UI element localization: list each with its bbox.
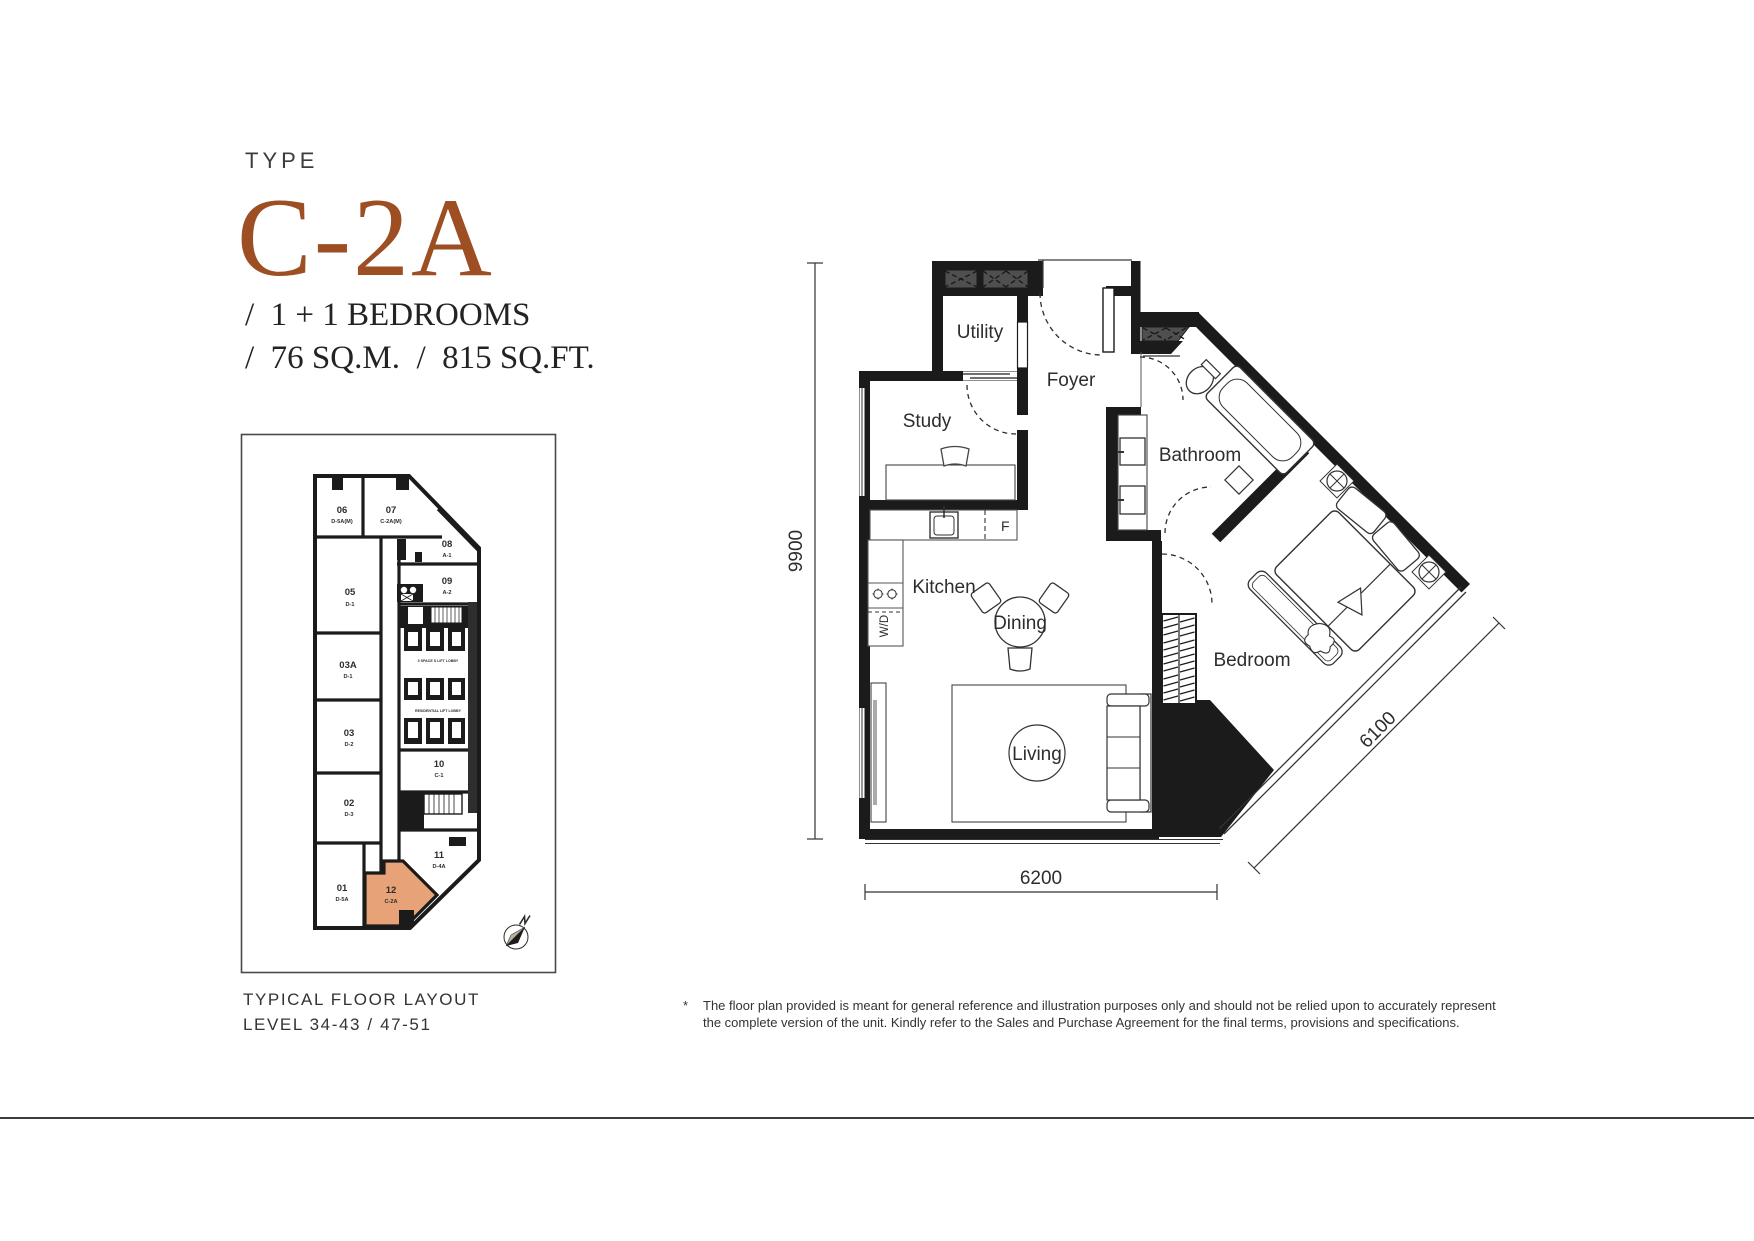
svg-text:F: F <box>1001 518 1010 534</box>
svg-text:6200: 6200 <box>1020 868 1062 889</box>
svg-text:Utility: Utility <box>957 322 1004 343</box>
svg-text:6100: 6100 <box>1356 708 1401 753</box>
svg-text:Study: Study <box>903 411 952 432</box>
svg-text:C-1: C-1 <box>434 773 443 779</box>
svg-text:Foyer: Foyer <box>1047 370 1096 391</box>
svg-text:D-2: D-2 <box>344 742 353 748</box>
svg-text:D-5A(M): D-5A(M) <box>331 519 353 525</box>
svg-text:05: 05 <box>345 587 356 598</box>
svg-text:08: 08 <box>442 539 453 550</box>
svg-text:06: 06 <box>337 505 348 516</box>
svg-text:9900: 9900 <box>786 530 807 572</box>
svg-text:02: 02 <box>344 798 355 809</box>
svg-text:3 SPACE S LIFT LOBBY: 3 SPACE S LIFT LOBBY <box>418 659 459 663</box>
svg-text:12: 12 <box>386 885 397 896</box>
svg-text:03: 03 <box>344 728 355 739</box>
svg-text:09: 09 <box>442 576 453 587</box>
svg-text:Bathroom: Bathroom <box>1159 445 1241 466</box>
svg-text:Bedroom: Bedroom <box>1213 650 1290 671</box>
svg-text:Dining: Dining <box>993 613 1047 634</box>
svg-text:D-5A: D-5A <box>335 897 348 903</box>
svg-text:11: 11 <box>434 850 445 861</box>
svg-text:A-1: A-1 <box>442 553 451 559</box>
svg-text:07: 07 <box>386 505 397 516</box>
svg-text:W/D: W/D <box>879 615 891 637</box>
svg-text:10: 10 <box>434 759 445 770</box>
svg-text:03A: 03A <box>339 660 357 671</box>
svg-text:01: 01 <box>337 883 348 894</box>
svg-text:Kitchen: Kitchen <box>912 577 975 598</box>
svg-text:D-1: D-1 <box>345 602 354 608</box>
svg-text:D-4A: D-4A <box>432 864 445 870</box>
svg-text:D-3: D-3 <box>344 812 353 818</box>
svg-text:Living: Living <box>1012 744 1062 765</box>
svg-text:C-2A(M): C-2A(M) <box>380 519 402 525</box>
svg-text:D-1: D-1 <box>343 674 352 680</box>
svg-text:C-2A: C-2A <box>384 899 397 905</box>
svg-text:A-2: A-2 <box>442 590 451 596</box>
svg-text:RESIDENTIAL LIFT LOBBY: RESIDENTIAL LIFT LOBBY <box>415 709 462 713</box>
